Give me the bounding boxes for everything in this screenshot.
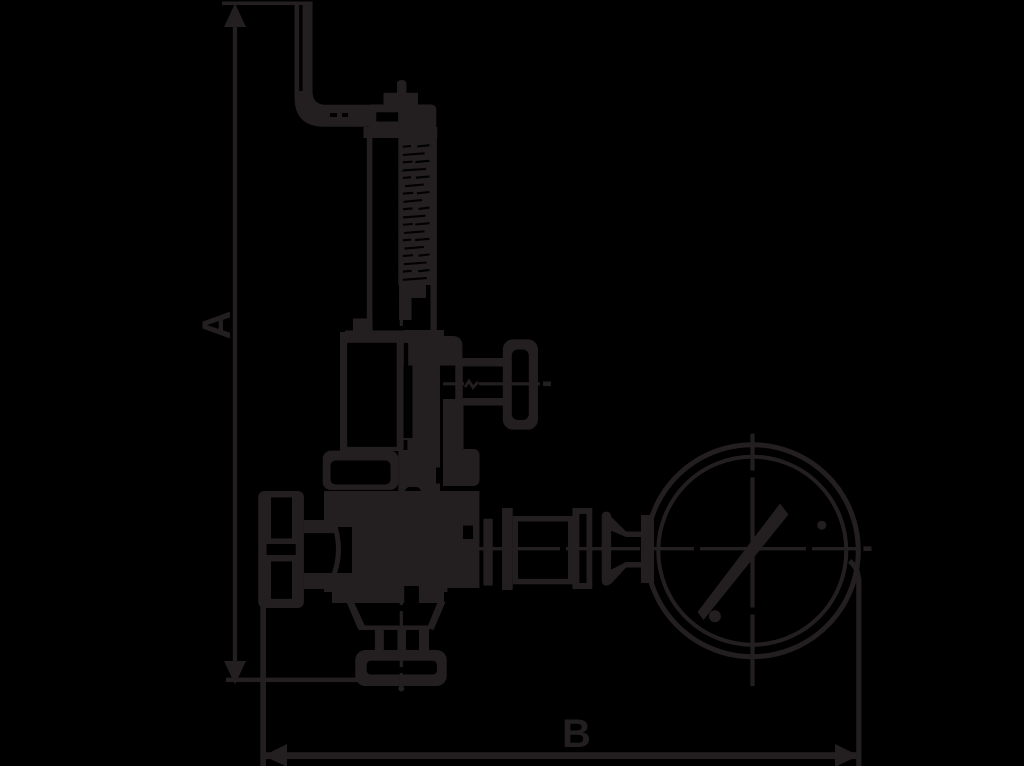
svg-text:B: B (562, 712, 591, 756)
svg-text:A: A (195, 311, 239, 340)
